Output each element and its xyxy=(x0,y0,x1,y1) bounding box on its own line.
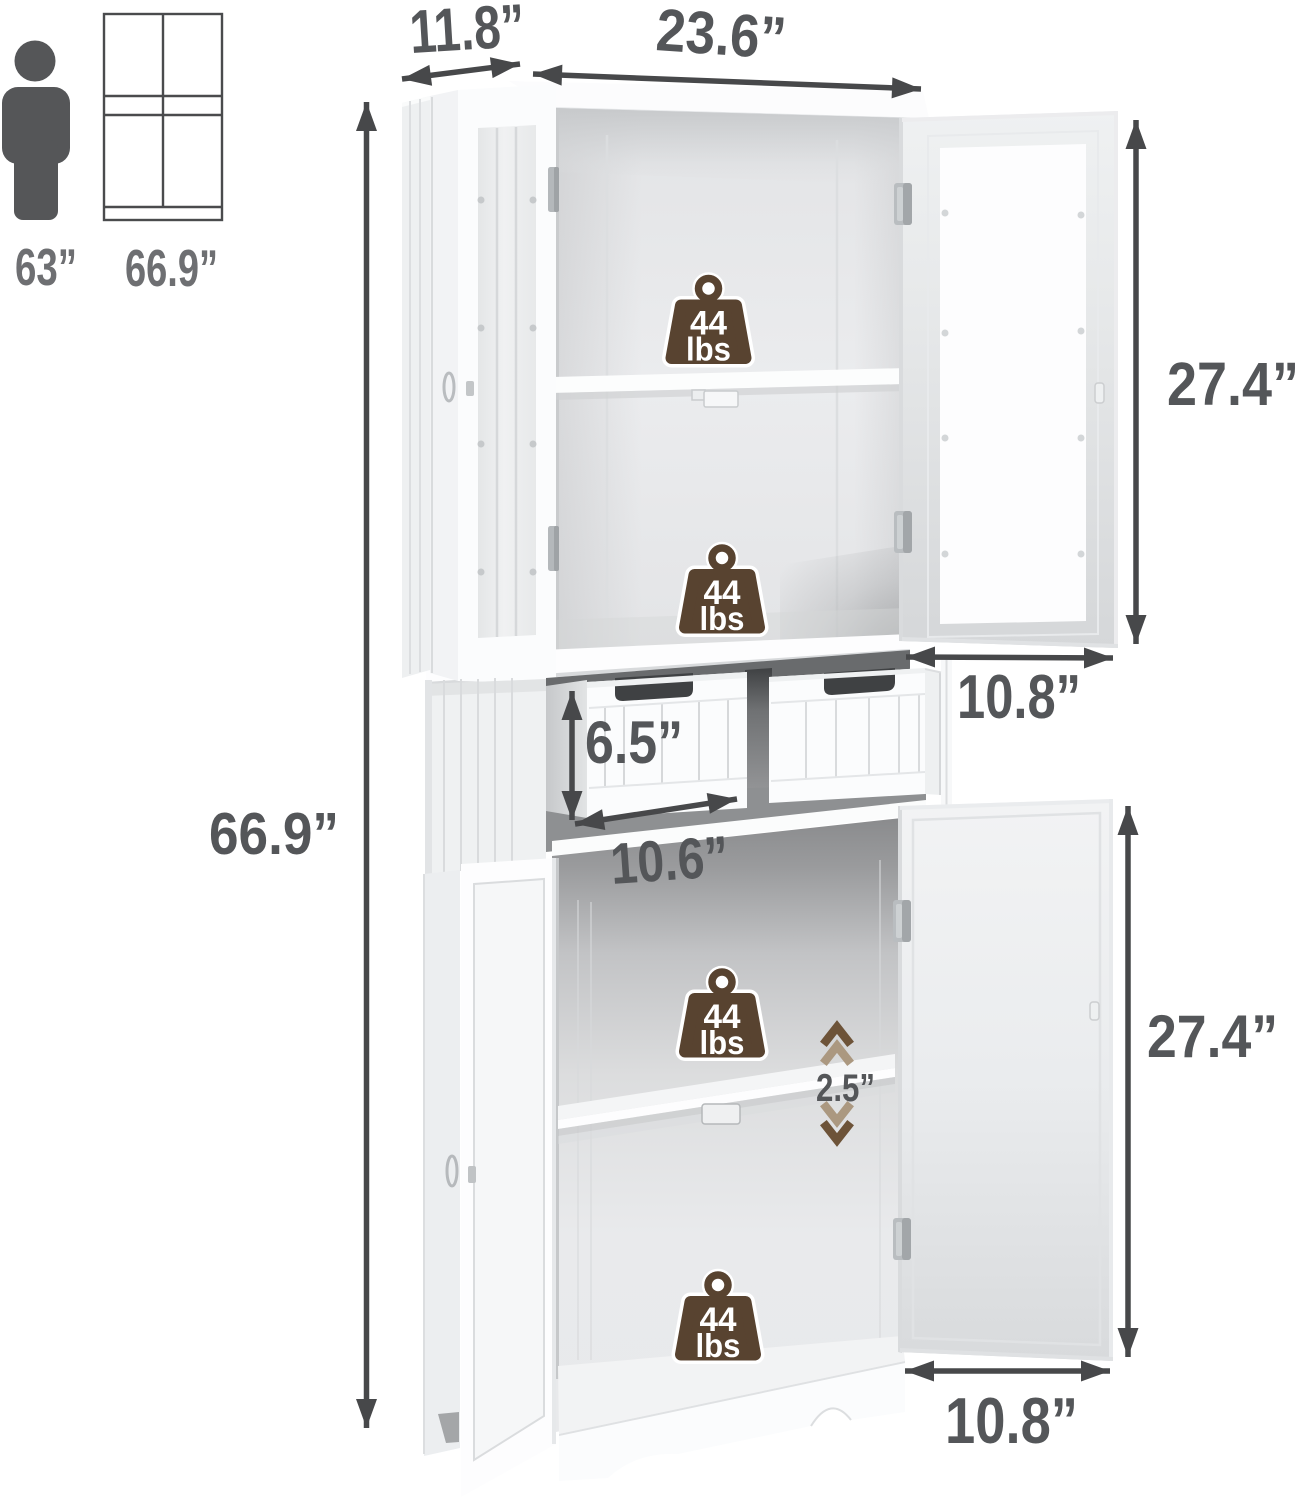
svg-text:10.8”: 10.8” xyxy=(945,1384,1078,1457)
svg-text:11.8”: 11.8” xyxy=(408,0,527,66)
svg-text:6.5”: 6.5” xyxy=(585,709,683,776)
svg-text:63”: 63” xyxy=(15,239,77,297)
svg-text:10.8”: 10.8” xyxy=(957,663,1081,732)
svg-text:27.4”: 27.4” xyxy=(1147,1003,1278,1070)
svg-text:27.4”: 27.4” xyxy=(1167,350,1296,418)
svg-text:10.6”: 10.6” xyxy=(608,824,730,897)
svg-text:66.9”: 66.9” xyxy=(125,240,218,298)
svg-text:23.6”: 23.6” xyxy=(654,0,788,72)
svg-text:66.9”: 66.9” xyxy=(209,801,339,867)
